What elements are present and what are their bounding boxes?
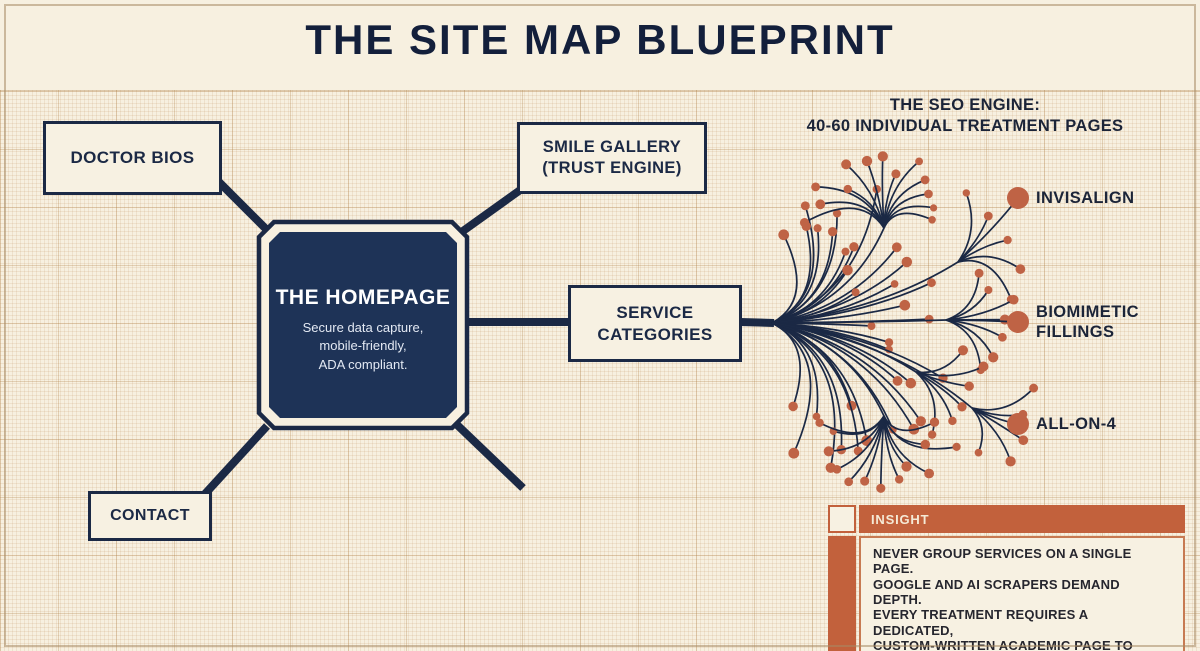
treatment-label-invisalign: INVISALIGN <box>1036 188 1134 208</box>
insight-body-text: NEVER GROUP SERVICES ON A SINGLE PAGE. G… <box>859 536 1185 651</box>
seo-engine-heading: THE SEO ENGINE: 40-60 INDIVIDUAL TREATME… <box>770 95 1160 137</box>
page-title: THE SITE MAP BLUEPRINT <box>0 16 1200 64</box>
seo-fan-dendrogram <box>772 151 1038 493</box>
insight-callout: INSIGHT NEVER GROUP SERVICES ON A SINGLE… <box>828 505 1185 637</box>
node-doctor-bios: DOCTOR BIOS <box>43 121 222 195</box>
node-smile-gallery: SMILE GALLERY (TRUST ENGINE) <box>517 122 707 194</box>
homepage-label: THE HOMEPAGE <box>272 286 454 310</box>
insight-header: INSIGHT <box>859 505 1185 533</box>
treatment-label-all-on-4: ALL-ON-4 <box>1036 414 1116 434</box>
sitemap-blueprint-infographic: THE SITE MAP BLUEPRINT DOCTOR BIOS SMILE… <box>0 0 1200 651</box>
homepage-sublabel: Secure data capture, mobile-friendly, AD… <box>272 319 454 374</box>
node-service-categories: SERVICE CATEGORIES <box>568 285 742 362</box>
insight-corner-cell <box>828 505 856 533</box>
node-contact: CONTACT <box>88 491 212 541</box>
node-homepage: THE HOMEPAGE Secure data capture, mobile… <box>272 286 454 374</box>
treatment-label-biomimetic-fillings: BIOMIMETIC FILLINGS <box>1036 302 1139 342</box>
insight-side-strip <box>828 536 856 651</box>
